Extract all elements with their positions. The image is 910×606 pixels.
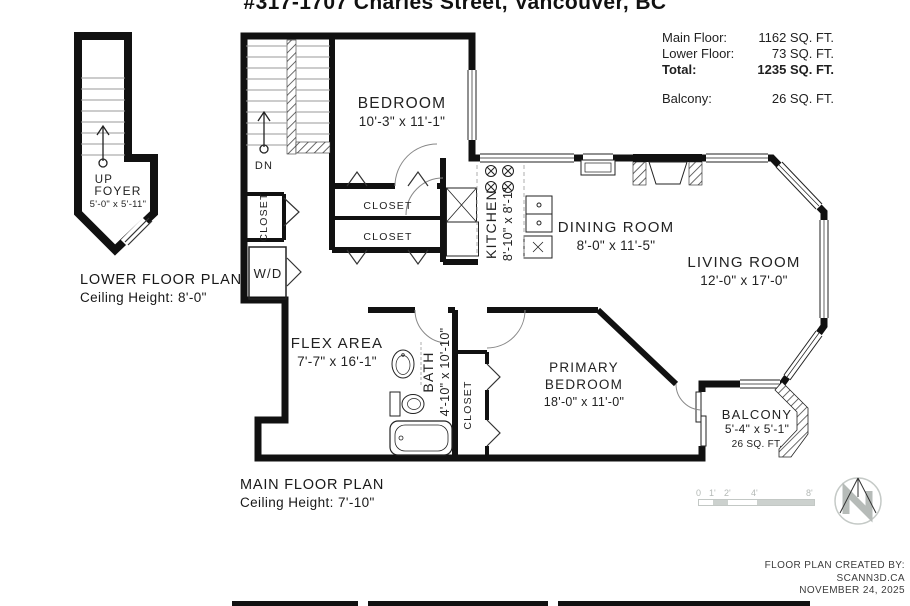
main-floor-plan: DN [244, 36, 828, 458]
credit-line-2: SCANN3D.CA [765, 573, 905, 586]
balcony-dims: 5'-4" x 5'-1" [725, 422, 789, 436]
bath-sink-icon [392, 350, 414, 378]
primary-bedroom-dims: 18'-0" x 11'-0" [544, 395, 624, 409]
dn-label: DN [255, 160, 273, 172]
dining-room-label: DINING ROOM [558, 219, 675, 236]
bath-label: BATH [420, 351, 436, 392]
bedroom-dims: 10'-3" x 11'-1" [359, 114, 446, 129]
lower-floor-ceiling-height: Ceiling Height: 8'-0" [80, 289, 242, 306]
kitchen-fixtures [447, 165, 553, 258]
primary-bedroom-label-2: BEDROOM [545, 377, 623, 392]
toilet-icon [390, 392, 424, 416]
flex-area-dims: 7'-7" x 16'-1" [297, 354, 377, 369]
main-floor-ceiling-height: Ceiling Height: 7'-10" [240, 494, 384, 511]
up-arrow-icon [97, 126, 109, 167]
foyer-dims: 5'-0" x 5'-11" [90, 199, 147, 210]
credit-block: FLOOR PLAN CREATED BY: SCANN3D.CA NOVEMB… [765, 560, 905, 598]
scale-tick: 2' [724, 488, 731, 498]
lower-floor-plan-title: LOWER FLOOR PLAN [80, 272, 242, 289]
kitchen-label: KITCHEN [483, 189, 499, 259]
closet-label: CLOSET [363, 231, 412, 243]
closet-label: CLOSET [462, 380, 474, 429]
lower-floor-caption: LOWER FLOOR PLAN Ceiling Height: 8'-0" [80, 272, 242, 306]
foyer-label: FOYER [94, 184, 141, 198]
dn-arrow-icon [258, 112, 270, 153]
scale-tick: 4' [751, 488, 758, 498]
scale-tick: 8' [806, 488, 813, 498]
kitchen-sink-icon [526, 196, 552, 232]
living-room-label: LIVING ROOM [687, 254, 800, 271]
bottom-edge-bar [232, 601, 810, 606]
fireplace [633, 154, 702, 185]
flex-area-label: FLEX AREA [291, 335, 384, 352]
bath-dims: 4'-10" x 10'-10" [438, 328, 452, 417]
north-arrow-icon [835, 478, 881, 524]
living-room-dims: 12'-0" x 17'-0" [700, 273, 788, 288]
lower-floor-plan: UP FOYER 5'-0" x 5'-11" [78, 36, 154, 250]
scale-bar: 0 1' 2' 4' 8' [698, 488, 816, 508]
main-floor-plan-title: MAIN FLOOR PLAN [240, 477, 384, 494]
credit-line-3: NOVEMBER 24, 2025 [765, 585, 905, 598]
closet-label: CLOSET [363, 200, 412, 212]
scale-tick: 1' [709, 488, 716, 498]
balcony-label: BALCONY [722, 407, 793, 422]
washer-dryer-label: W/D [254, 266, 283, 281]
credit-line-1: FLOOR PLAN CREATED BY: [765, 560, 905, 573]
main-floor-caption: MAIN FLOOR PLAN Ceiling Height: 7'-10" [240, 477, 384, 511]
floor-plan-page: #317-1707 Charles Street, Vancouver, BC … [0, 0, 910, 606]
balcony-area: 26 SQ. FT. [732, 439, 783, 450]
bathtub-icon [390, 421, 452, 455]
kitchen-dims: 8'-10" x 8'-1" [501, 187, 515, 261]
dining-room-dims: 8'-0" x 11'-5" [577, 238, 656, 253]
primary-bedroom-label-1: PRIMARY [549, 360, 619, 375]
scale-tick: 0 [696, 488, 701, 498]
bedroom-label: BEDROOM [358, 95, 447, 112]
scale-bar-graphic [698, 499, 815, 506]
closet-label: CLOSET [258, 192, 270, 241]
main-stairs: DN [246, 40, 330, 172]
